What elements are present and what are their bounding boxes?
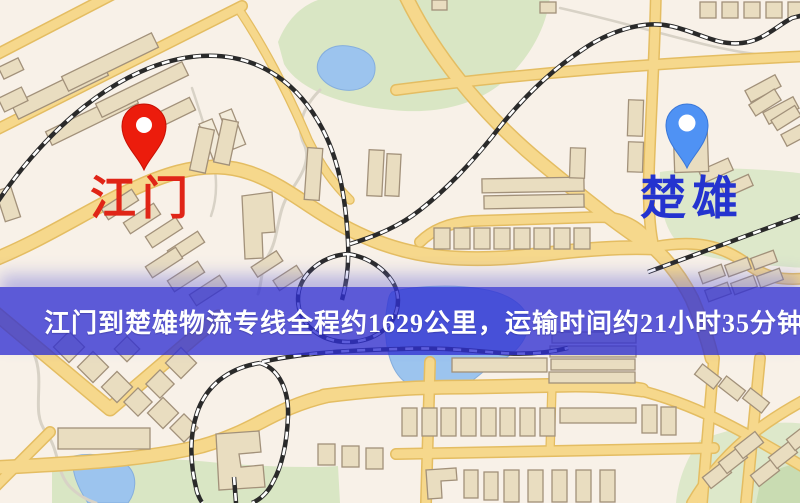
route-info-banner: 江门到楚雄物流专线全程约1629公里，运输时间约21小时35分钟. <box>0 287 800 355</box>
map-viewport[interactable]: 江门 楚雄 江门到楚雄物流专线全程约1629公里，运输时间约21小时35分钟. <box>0 0 800 503</box>
map-canvas[interactable] <box>0 0 800 503</box>
origin-label: 江门 <box>90 176 194 222</box>
route-info-text: 江门到楚雄物流专线全程约1629公里，运输时间约21小时35分钟. <box>44 303 800 340</box>
destination-label: 楚雄 <box>640 176 744 222</box>
